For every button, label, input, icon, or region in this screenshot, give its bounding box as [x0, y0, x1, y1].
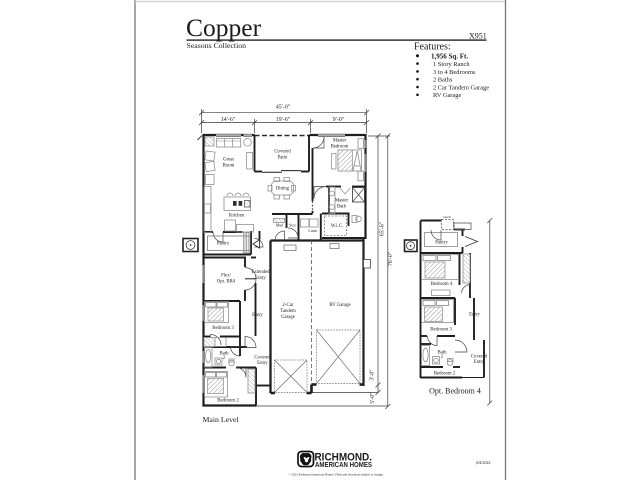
svg-text:2-Car: 2-Car: [283, 303, 294, 308]
svg-text:Room: Room: [223, 164, 235, 169]
svg-text:Kitchen: Kitchen: [229, 214, 245, 219]
svg-text:Mud: Mud: [276, 223, 284, 228]
svg-text:Entry: Entry: [474, 360, 485, 365]
svg-text:bench: bench: [443, 215, 451, 219]
svg-text:Stor: Stor: [289, 223, 296, 228]
svg-text:19′-6″: 19′-6″: [276, 117, 291, 123]
svg-text:76′-0″: 76′-0″: [388, 251, 394, 266]
svg-text:X951: X951: [469, 32, 487, 41]
svg-text:Bedroom 3: Bedroom 3: [430, 328, 452, 333]
svg-text:AMERICAN HOMES: AMERICAN HOMES: [315, 462, 372, 469]
svg-text:Entry: Entry: [255, 276, 266, 281]
svg-text:Garage: Garage: [281, 315, 295, 320]
svg-text:14′-6″: 14′-6″: [221, 117, 236, 123]
svg-text:1,956 Sq. Ft.: 1,956 Sq. Ft.: [431, 52, 468, 60]
svg-text:Main Level: Main Level: [203, 415, 240, 424]
svg-text:Bedroom 2: Bedroom 2: [217, 399, 239, 404]
svg-text:Opt. Bedroom 4: Opt. Bedroom 4: [429, 387, 481, 396]
svg-text:Extended: Extended: [251, 270, 270, 275]
svg-text:Covered: Covered: [471, 355, 488, 360]
svg-text:Covered: Covered: [274, 150, 291, 155]
svg-text:Entry: Entry: [257, 361, 268, 366]
svg-text:Flex/: Flex/: [221, 274, 232, 279]
svg-text:Bedroom 4: Bedroom 4: [431, 282, 453, 287]
svg-text:Tandem: Tandem: [280, 309, 296, 314]
svg-text:2 Baths: 2 Baths: [433, 77, 453, 84]
svg-text:Bedroom: Bedroom: [331, 145, 349, 150]
svg-text:3′-0″: 3′-0″: [370, 369, 376, 381]
svg-text:W.i.C.: W.i.C.: [331, 224, 343, 229]
svg-text:Pantry: Pantry: [217, 242, 230, 247]
svg-text:Patio: Patio: [278, 156, 288, 161]
svg-text:Opt. BR4: Opt. BR4: [217, 280, 236, 285]
svg-text:Laun: Laun: [308, 228, 316, 233]
svg-text:9′-0″: 9′-0″: [333, 117, 345, 123]
svg-text:Bedroom 2: Bedroom 2: [434, 372, 456, 377]
svg-text:(04/2022: (04/2022: [476, 460, 490, 465]
svg-text:1 Story Ranch: 1 Story Ranch: [433, 61, 470, 68]
svg-text:Entry: Entry: [469, 313, 480, 318]
svg-text:Dining: Dining: [276, 187, 290, 192]
svg-text:Great: Great: [223, 158, 234, 163]
svg-text:Entry: Entry: [252, 313, 263, 318]
svg-text:2 Car Tandem Garage: 2 Car Tandem Garage: [433, 84, 489, 91]
svg-text:5′-0″: 5′-0″: [370, 392, 376, 404]
svg-text:Seasons Collection: Seasons Collection: [187, 41, 247, 50]
svg-text:Master: Master: [333, 139, 347, 144]
svg-text:Copper: Copper: [186, 13, 262, 42]
svg-text:Master: Master: [335, 199, 349, 204]
svg-text:Covered: Covered: [254, 356, 271, 361]
svg-text:RV Garage: RV Garage: [433, 92, 461, 99]
svg-text:65′-6″: 65′-6″: [380, 221, 386, 236]
svg-text:45′-0″: 45′-0″: [276, 105, 291, 111]
svg-text:RV Garage: RV Garage: [329, 303, 350, 308]
svg-text:Bath: Bath: [337, 205, 347, 210]
svg-text:3 to 4 Bedrooms: 3 to 4 Bedrooms: [433, 69, 476, 76]
svg-text:© 2022 Richmond American Homes: © 2022 Richmond American Homes. Plans an…: [288, 472, 383, 477]
svg-text:Bedroom 3: Bedroom 3: [212, 326, 234, 331]
svg-text:Features:: Features:: [414, 42, 451, 53]
svg-text:Pantry: Pantry: [435, 241, 448, 246]
